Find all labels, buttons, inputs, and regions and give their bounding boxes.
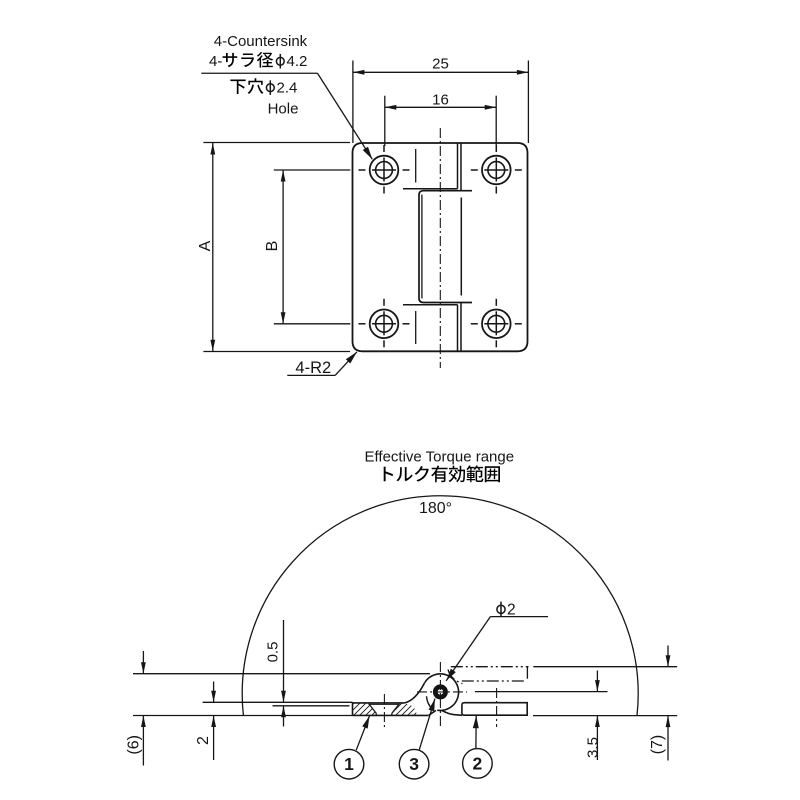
svg-text:0.5: 0.5 xyxy=(265,642,282,663)
svg-text:3: 3 xyxy=(409,754,419,774)
svg-text:16: 16 xyxy=(432,92,449,109)
svg-text:Effective Torque range: Effective Torque range xyxy=(365,448,515,465)
svg-text:B: B xyxy=(264,241,281,252)
svg-text:3.5: 3.5 xyxy=(585,737,602,758)
svg-text:25: 25 xyxy=(432,55,449,72)
svg-text:(7): (7) xyxy=(649,735,666,755)
svg-text:(6): (6) xyxy=(126,735,143,755)
svg-text:Hole: Hole xyxy=(268,101,299,118)
svg-text:180°: 180° xyxy=(419,500,452,517)
svg-text:2: 2 xyxy=(195,736,212,745)
svg-text:4.2: 4.2 xyxy=(287,53,308,70)
svg-text:A: A xyxy=(197,240,214,251)
svg-text:4-: 4- xyxy=(209,53,222,70)
svg-text:2.4: 2.4 xyxy=(277,80,298,97)
svg-text:1: 1 xyxy=(344,754,354,774)
svg-text:4-R2: 4-R2 xyxy=(295,359,331,377)
svg-text:2: 2 xyxy=(473,753,483,773)
svg-text:4-Countersink: 4-Countersink xyxy=(214,33,308,50)
